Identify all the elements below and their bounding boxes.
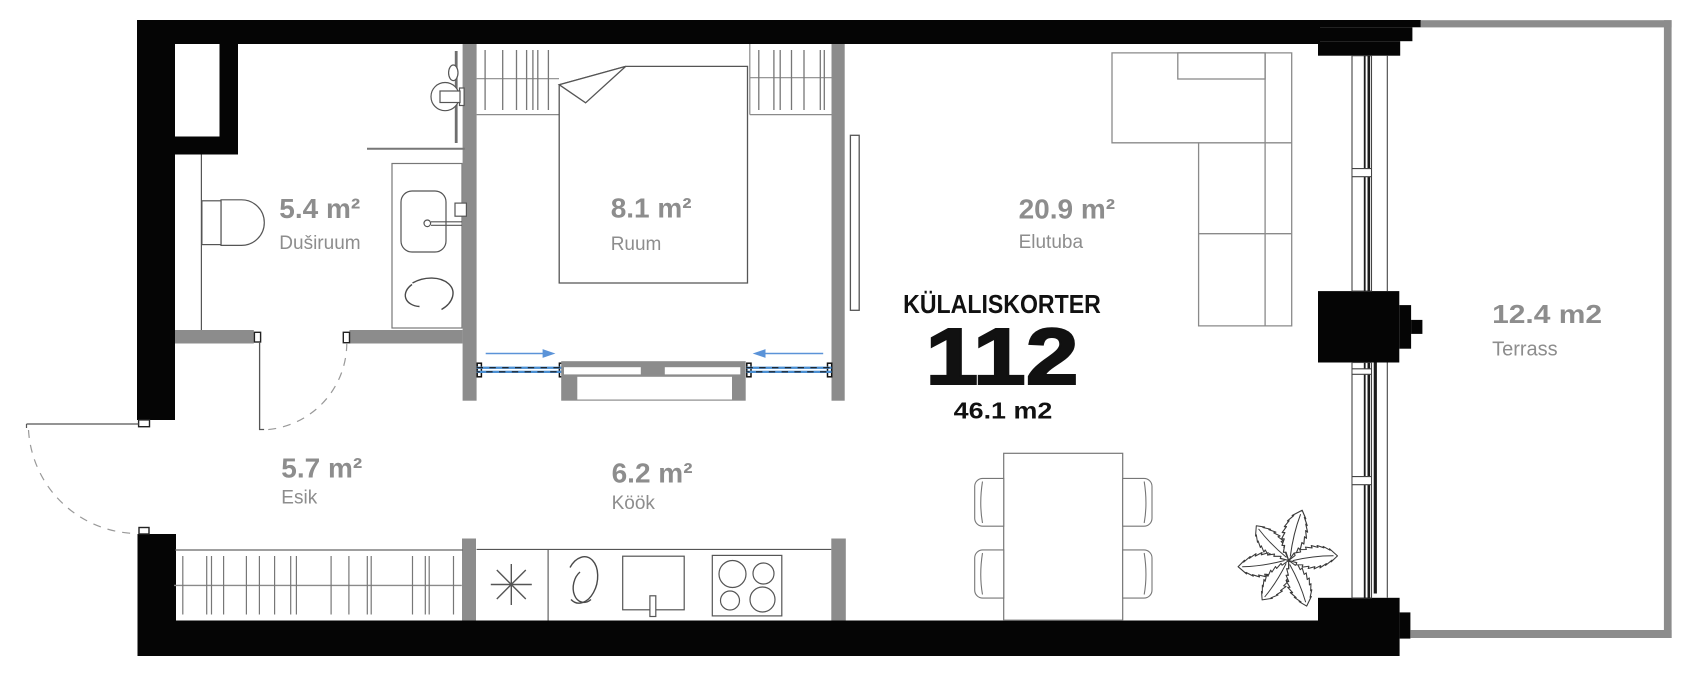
svg-text:46.1 m2: 46.1 m2 bbox=[954, 398, 1053, 424]
svg-text:Köök: Köök bbox=[612, 493, 656, 514]
svg-text:Terrass: Terrass bbox=[1492, 338, 1558, 360]
svg-text:Elutuba: Elutuba bbox=[1019, 232, 1084, 253]
svg-text:Ruum: Ruum bbox=[611, 234, 662, 255]
svg-text:112: 112 bbox=[926, 312, 1079, 401]
svg-text:12.4 m2: 12.4 m2 bbox=[1492, 299, 1602, 329]
svg-text:8.1 m²: 8.1 m² bbox=[611, 192, 692, 223]
svg-text:5.4 m²: 5.4 m² bbox=[279, 193, 360, 224]
svg-text:6.2 m²: 6.2 m² bbox=[612, 458, 693, 489]
svg-text:Esik: Esik bbox=[281, 488, 317, 509]
svg-text:20.9 m²: 20.9 m² bbox=[1019, 193, 1116, 224]
svg-text:5.7 m²: 5.7 m² bbox=[281, 452, 362, 483]
svg-text:Duširuum: Duširuum bbox=[279, 233, 360, 254]
